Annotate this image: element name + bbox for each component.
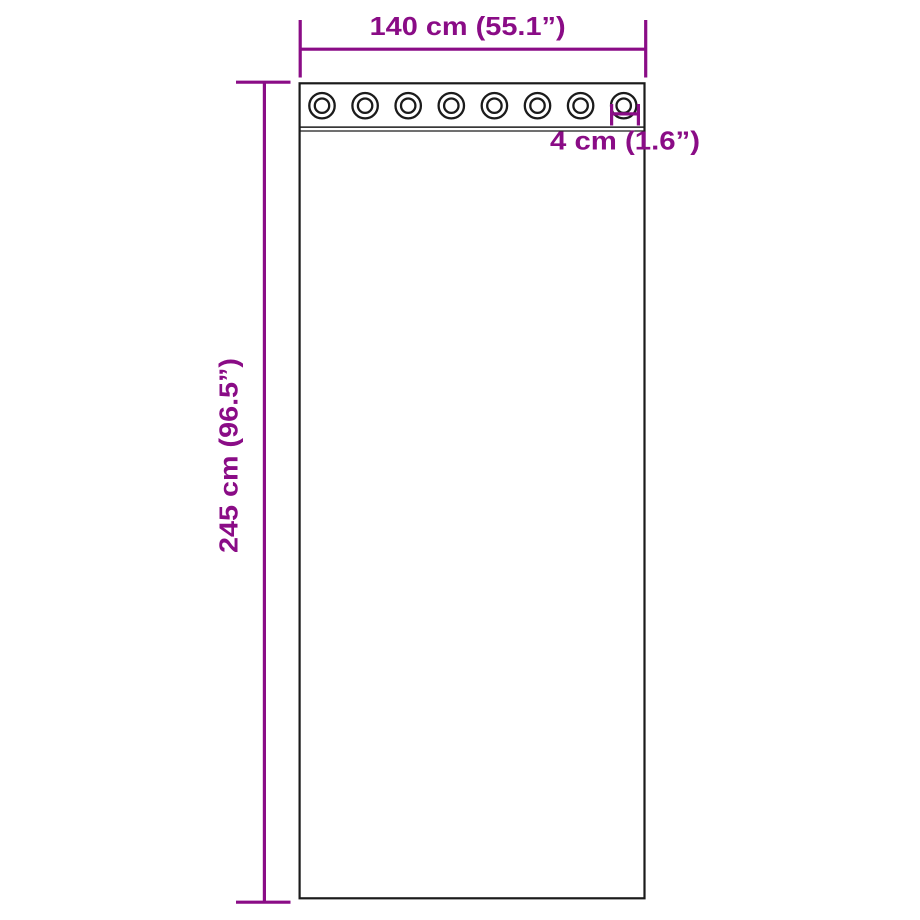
svg-text:245 cm (96.5”): 245 cm (96.5”) [214,358,244,553]
svg-text:140 cm (55.1”): 140 cm (55.1”) [370,11,566,41]
svg-text:4 cm (1.6”): 4 cm (1.6”) [550,126,700,156]
